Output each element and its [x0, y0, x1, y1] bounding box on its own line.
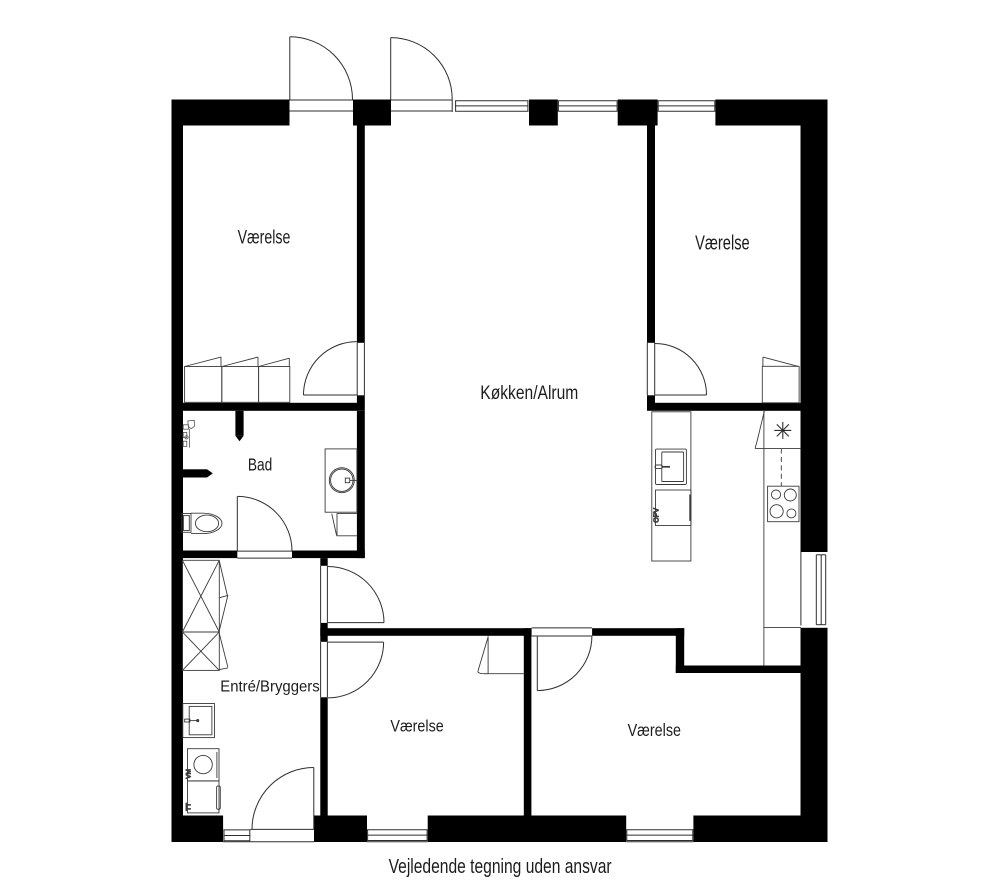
svg-text:VM: VM [186, 769, 193, 779]
svg-text:Værelse: Værelse [390, 717, 443, 736]
svg-text:Vejledende tegning uden ansvar: Vejledende tegning uden ansvar [389, 856, 612, 878]
svg-text:Værelse: Værelse [628, 720, 681, 740]
svg-text:Bad: Bad [248, 455, 272, 475]
svg-text:OPV: OPV [654, 508, 661, 523]
svg-text:Entré/Bryggers: Entré/Bryggers [220, 679, 319, 696]
svg-text:Værelse: Værelse [695, 233, 750, 255]
svg-text:Værelse: Værelse [238, 227, 291, 249]
svg-text:TT: TT [186, 803, 193, 811]
svg-text:Køkken/Alrum: Køkken/Alrum [480, 382, 578, 404]
